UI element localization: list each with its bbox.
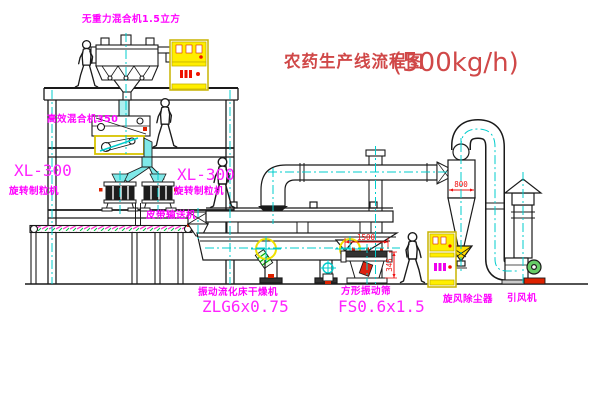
process-flow-diagram: 800 [0, 0, 600, 403]
dim-sieve-345: 345 [385, 258, 394, 272]
page-title-capacity: (500kg/h) [392, 48, 519, 78]
person-second-floor [153, 99, 176, 147]
label-belt-conveyor: 皮带输送机 [145, 209, 196, 221]
label-gravity-mixer: 无重力混合机1.5立方 [81, 13, 180, 25]
label-sieve-model: FS0.6x1.5 [338, 297, 425, 316]
gravity-free-mixer [91, 35, 172, 100]
rotary-granulator-right [140, 174, 178, 211]
label-xl300-left: XL-300 [14, 161, 72, 180]
label-granulator-right: 旋转制粒机 [173, 185, 224, 197]
label-cyclone: 旋风除尘器 [442, 293, 493, 305]
control-cabinet-right [428, 232, 456, 287]
person-ground [401, 233, 425, 283]
label-xl300-right: XL-300 [177, 165, 235, 184]
label-fan: 引风机 [507, 292, 537, 304]
dim-sieve-1500: 1500 [357, 233, 376, 242]
label-sieve-name: 方形振动筛 [341, 285, 391, 297]
control-panel-marks [434, 263, 446, 271]
control-panel-marks [180, 70, 192, 78]
belt-conveyor [30, 224, 192, 284]
label-high-speed-mixer: 高效混合机350 [47, 113, 118, 125]
diagram-canvas: 800 [0, 0, 600, 403]
control-cabinet-top [170, 40, 208, 90]
label-granulator-left: 旋转制粒机 [8, 185, 59, 197]
fan-base [524, 278, 545, 284]
label-dryer-model: ZLG6x0.75 [202, 297, 289, 316]
high-speed-mixer [92, 100, 152, 157]
granulator-discharge-channel [136, 203, 141, 226]
